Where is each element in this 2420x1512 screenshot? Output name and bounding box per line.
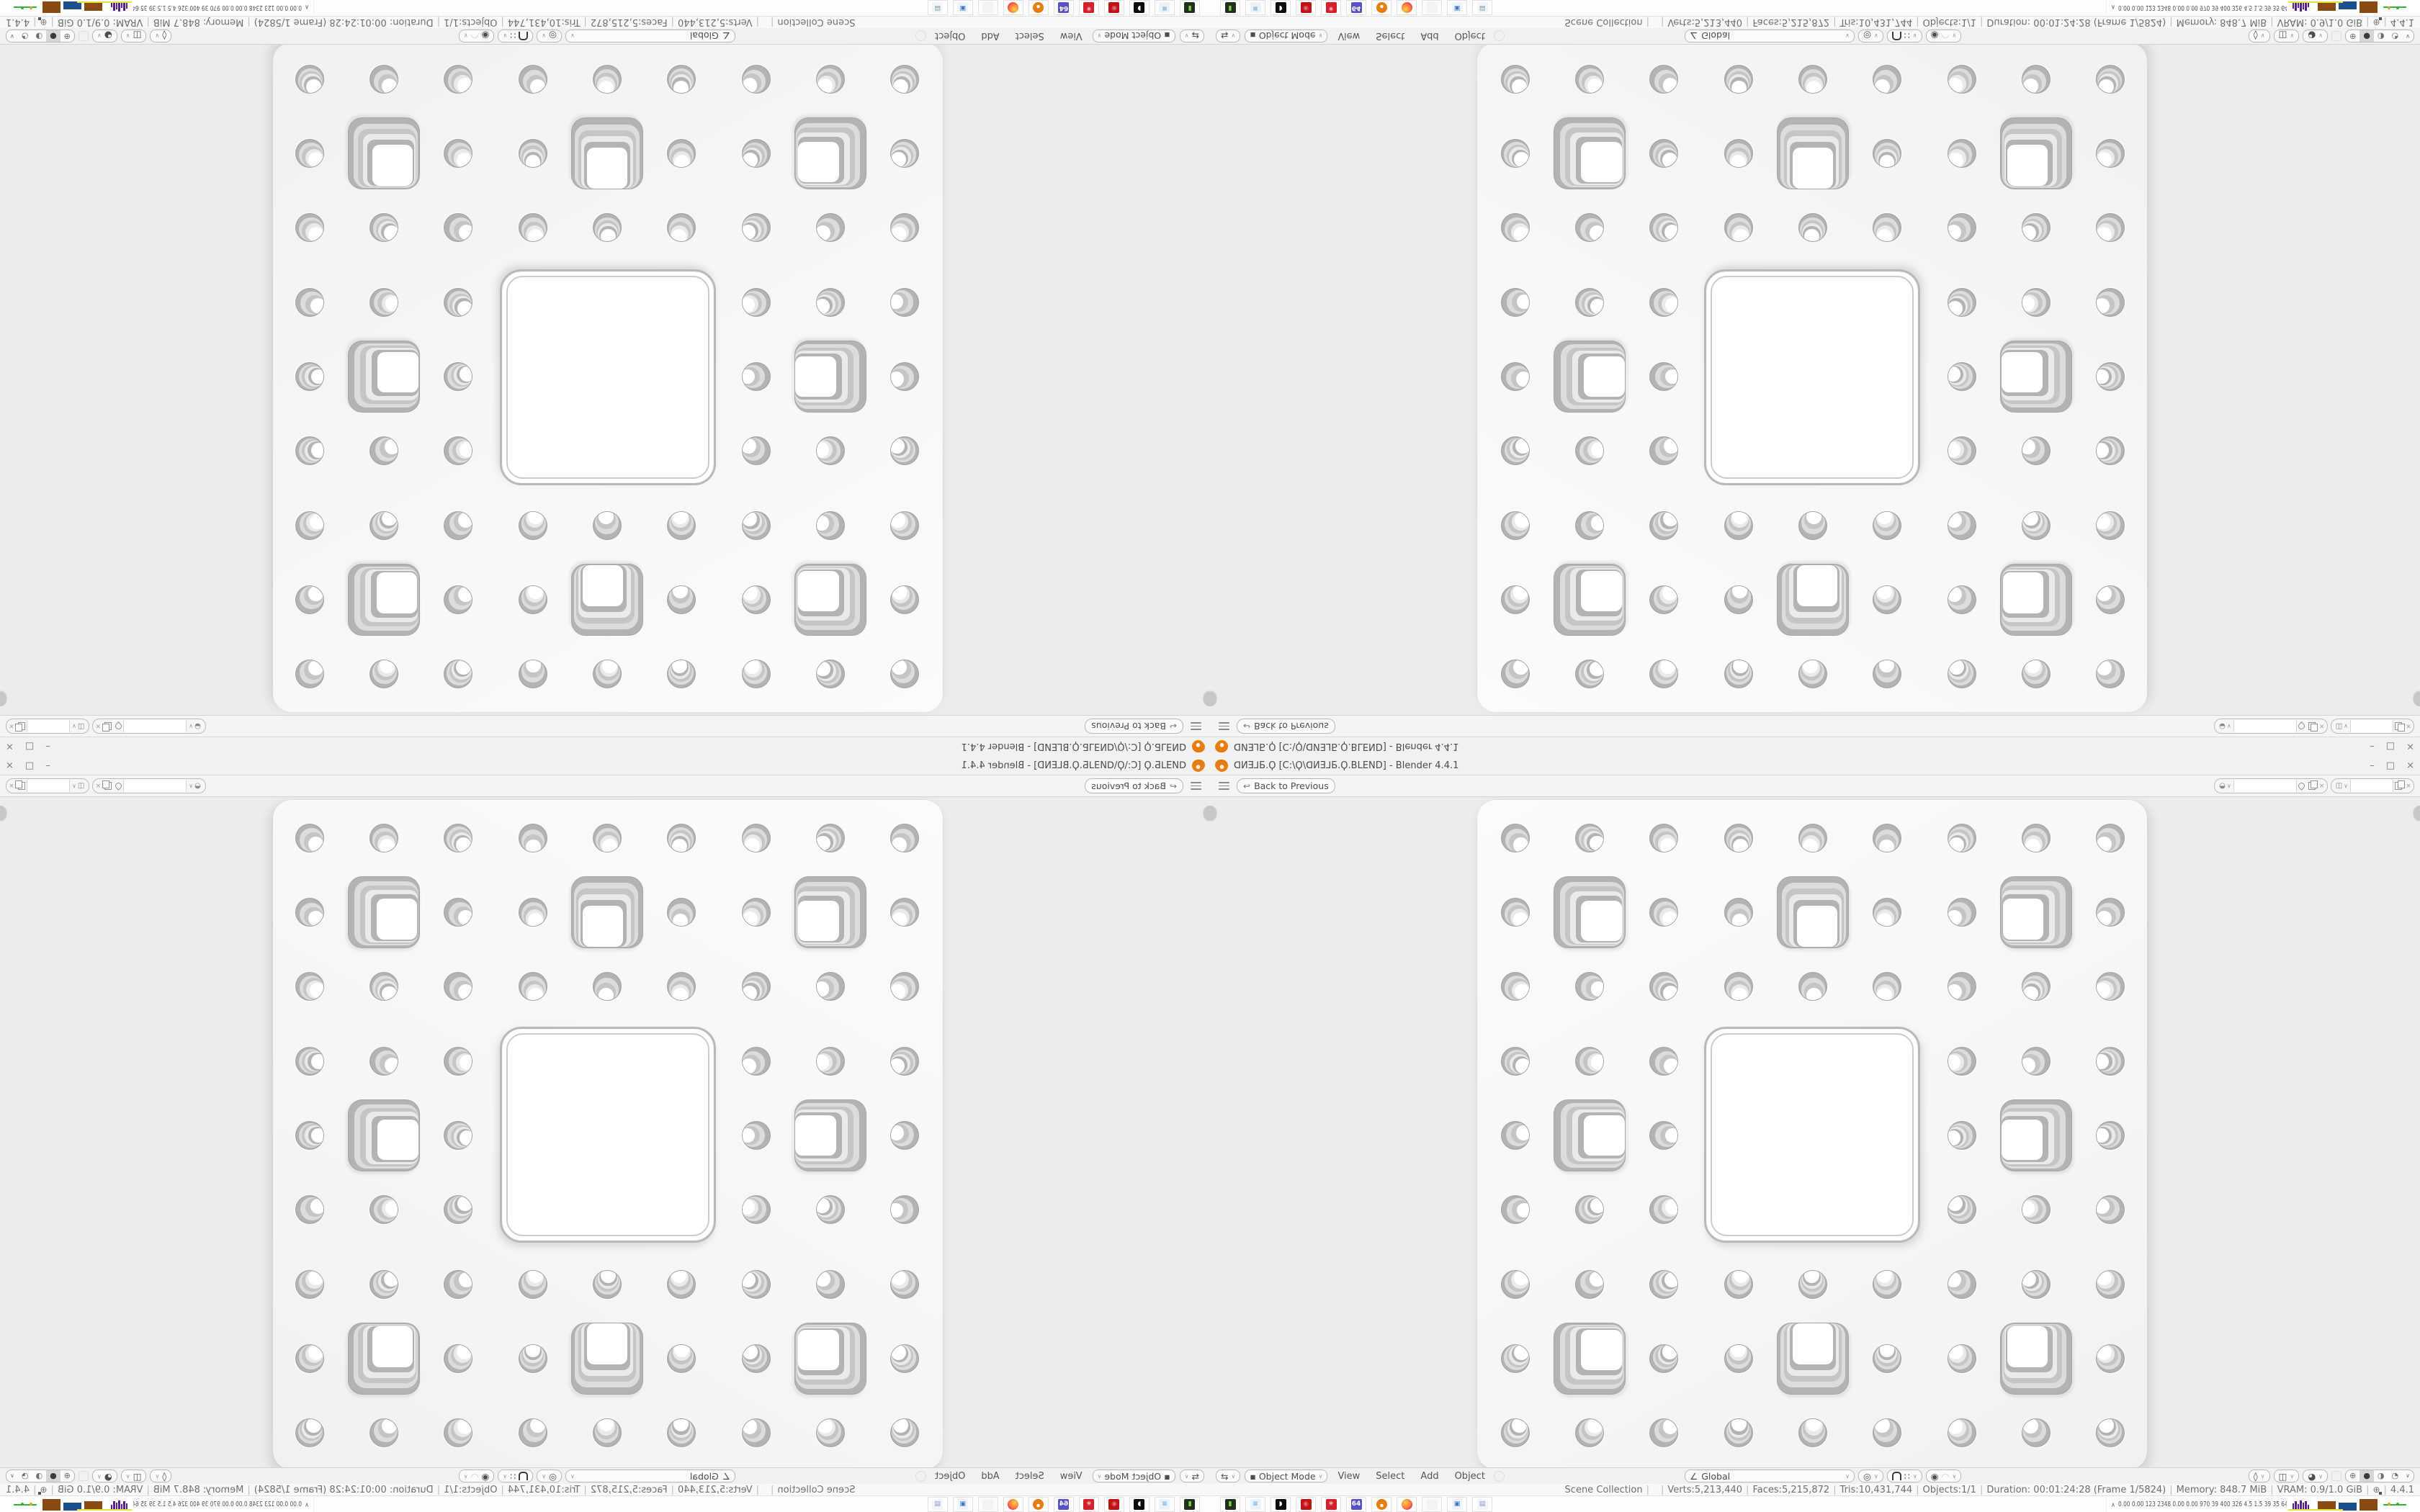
calculator-app[interactable]: ▤ xyxy=(1472,1497,1492,1512)
square-tunnel-hole xyxy=(794,117,866,189)
circle-hole xyxy=(1798,511,1827,540)
editor-type-button[interactable]: ⇆ ∨ xyxy=(1216,30,1240,42)
viewlayer-selector[interactable]: ◫ ∨ × xyxy=(6,778,89,793)
shading-mode-2-button[interactable]: ◑ xyxy=(32,1470,46,1482)
calculator-app[interactable]: ▤ xyxy=(928,1497,948,1512)
menu-add[interactable]: Add xyxy=(1420,31,1438,42)
viewport-header: ⇆ ∨ ▪ Object Mode ∨ ViewSelectAddObject … xyxy=(0,1467,1210,1485)
display-tool-app[interactable]: ▣ xyxy=(953,0,973,15)
circle-hole xyxy=(742,511,771,540)
topbar-right-cluster: ◒ ∨ × ◫ ∨ × xyxy=(2214,719,2414,734)
circle-hole xyxy=(295,1344,324,1373)
separator: | xyxy=(146,1485,149,1495)
stat-6: VRAM: 0.9/1.0 GiB xyxy=(2277,17,2363,28)
scene-selector[interactable]: ◒ ∨ × xyxy=(2214,778,2328,793)
blender-logo-icon xyxy=(1216,760,1228,772)
close-button[interactable]: × xyxy=(6,742,14,752)
square-tunnel-hole xyxy=(348,1323,419,1394)
circle-hole xyxy=(1948,362,1976,391)
xray-toggle-disabled-icon xyxy=(2331,31,2341,41)
red-dial-app[interactable]: ◉ xyxy=(1296,0,1316,15)
magnet-icon xyxy=(519,32,528,40)
blender-app[interactable] xyxy=(1371,1497,1391,1512)
close-button[interactable]: × xyxy=(2406,761,2414,770)
circle-hole xyxy=(1873,585,1901,614)
toolbar-collapsed-tab[interactable] xyxy=(1204,806,1210,820)
shading-mode-1-button[interactable]: ● xyxy=(2359,30,2374,42)
stat-1: Faces:5,215,872 xyxy=(1752,17,1829,28)
show-overlays-button[interactable]: ◫ ∨ xyxy=(121,1470,147,1482)
chevron-down-icon: ∨ xyxy=(464,33,468,40)
back-to-previous-button[interactable]: ↩ Back to Previous xyxy=(1237,778,1335,793)
editor-type-button[interactable]: ⇆ ∨ xyxy=(1216,1470,1240,1482)
stat-4: Duration: 00:01:24:28 (Frame 1/5824) xyxy=(254,1485,434,1495)
scene-selector[interactable]: ◒ ∨ × xyxy=(92,778,206,793)
shading-mode-2-button[interactable]: ◑ xyxy=(2374,1470,2388,1482)
hardware-monitor-app-icon: ▮ xyxy=(1225,2,1236,13)
sidebar-collapsed-tab[interactable] xyxy=(2414,692,2420,706)
close-button[interactable]: × xyxy=(6,761,14,770)
menu-add[interactable]: Add xyxy=(981,1471,999,1482)
viewport-3d[interactable] xyxy=(1210,797,2420,1467)
xray-dropdown-button[interactable]: ◕ ∨ xyxy=(92,1470,117,1482)
circle-hole xyxy=(1501,1270,1530,1299)
back-to-previous-button[interactable]: ↩ Back to Previous xyxy=(1085,778,1183,793)
circle-hole xyxy=(444,362,472,391)
separator: | xyxy=(1661,17,1664,28)
viewlayer-name-field[interactable] xyxy=(27,780,70,792)
separator: | xyxy=(1833,17,1836,28)
snap-button[interactable]: ∷ ∨ xyxy=(1887,1470,1922,1482)
shading-mode-0-button[interactable]: ⊕ xyxy=(60,30,74,42)
circle-hole xyxy=(1948,972,1976,1001)
pivot-point-button[interactable]: ◎ ∨ xyxy=(1858,1470,1883,1482)
menu-hamburger-icon[interactable] xyxy=(1191,782,1201,790)
window-controls: – □ × xyxy=(2370,742,2414,752)
shading-mode-1-button[interactable]: ● xyxy=(46,30,60,42)
circle-hole xyxy=(1724,65,1753,94)
firefox-app[interactable] xyxy=(1003,0,1023,15)
disabled-tool-icon xyxy=(1494,31,1505,42)
red-gear-app[interactable]: ✳ xyxy=(1079,1497,1099,1512)
display-tool-app[interactable]: ▣ xyxy=(1447,1497,1467,1512)
big-square-hole xyxy=(500,1027,716,1243)
new-viewlayer-copy-icon[interactable] xyxy=(2393,782,2403,790)
shading-mode-segment[interactable]: ⊕●◑◔∨ xyxy=(2345,30,2414,42)
separator: | xyxy=(2270,17,2273,28)
ghost-app[interactable] xyxy=(978,0,998,15)
square-tunnel-hole xyxy=(571,1323,642,1394)
notepad-app-icon: ≡ xyxy=(1160,1499,1170,1510)
hardware-monitor-app[interactable]: ▮ xyxy=(1220,1497,1240,1512)
viewlayer-icon: ◫ xyxy=(76,722,89,730)
menu-select[interactable]: Select xyxy=(1016,31,1044,42)
circle-hole xyxy=(742,898,771,927)
separator: | xyxy=(2366,1485,2369,1495)
blender-app[interactable] xyxy=(1371,0,1391,15)
sidebar-collapsed-tab[interactable] xyxy=(2414,806,2420,820)
viewport-3d[interactable] xyxy=(0,797,1210,1467)
circle-hole xyxy=(742,288,771,317)
proportional-edit-button[interactable]: ◉ ◠ ∨ xyxy=(459,1470,495,1482)
pin-icon[interactable] xyxy=(2297,783,2307,789)
pivot-point-button[interactable]: ◎ ∨ xyxy=(537,1470,562,1482)
viewport-3d[interactable] xyxy=(0,45,1210,715)
chevron-down-icon: ∨ xyxy=(155,33,159,40)
show-overlays-button[interactable]: ◫ ∨ xyxy=(121,30,147,42)
circle-hole xyxy=(519,65,547,94)
viewlayer-icon: ◫ xyxy=(2331,722,2344,730)
network-status-icon[interactable]: ⊕ xyxy=(40,1485,47,1495)
chevron-down-icon[interactable]: ∨ xyxy=(2402,30,2414,42)
proportional-dot-icon: ◉ xyxy=(1931,1471,1939,1482)
transform-orientation-dropdown[interactable]: ∠ Global ∨ xyxy=(565,1470,735,1482)
xray-sphere-icon: ◕ xyxy=(104,1471,112,1482)
snap-button[interactable]: ∷ ∨ xyxy=(498,1470,533,1482)
black-image-app[interactable]: ◗ xyxy=(1129,0,1149,15)
circle-hole xyxy=(667,139,696,168)
menu-select[interactable]: Select xyxy=(1016,1471,1044,1482)
scene-name-field[interactable] xyxy=(2233,720,2297,732)
new-scene-copy-icon[interactable] xyxy=(2307,722,2317,730)
chevron-down-icon: ∨ xyxy=(1874,33,1878,40)
circle-hole xyxy=(444,139,472,168)
xray-dropdown-button[interactable]: ◕ ∨ xyxy=(2303,1470,2328,1482)
header-right-cluster: ◊ ∨ ◫ ∨ ◕ ∨ ⊕●◑◔∨ xyxy=(6,1470,171,1482)
show-gizmo-button[interactable]: ◊ ∨ xyxy=(2249,30,2270,42)
floppy-64-app[interactable]: 64 xyxy=(1054,1497,1074,1512)
toolbar-collapsed-tab[interactable] xyxy=(1204,692,1210,706)
display-tool-app[interactable]: ▣ xyxy=(953,1497,973,1512)
chevron-down-icon[interactable]: ∨ xyxy=(6,30,18,42)
restore-button[interactable]: □ xyxy=(2386,742,2395,752)
floppy-64-app-icon: 64 xyxy=(1351,1499,1362,1510)
transform-orientation-dropdown[interactable]: ∠ Global ∨ xyxy=(565,30,735,42)
mode-label: Object Mode xyxy=(1259,31,1316,42)
viewport-3d[interactable] xyxy=(1210,45,2420,715)
taskbar-apps: ▮≡◗◉✳64▣▤ xyxy=(928,0,1200,15)
mode-dropdown[interactable]: ▪ Object Mode ∨ xyxy=(1093,30,1175,42)
system-monitor-widget[interactable]: ∧∧ 0.00 0.00 123 2348 0.00 0.00 970 39 4… xyxy=(2106,1497,2420,1512)
circle-hole xyxy=(593,972,622,1001)
close-button[interactable]: × xyxy=(2406,742,2414,752)
taskbar-apps: ▮≡◗◉✳64▣▤ xyxy=(1220,1497,1492,1512)
pin-icon[interactable] xyxy=(2297,723,2307,729)
scene-name-field[interactable] xyxy=(2233,780,2297,792)
stat-2: Tris:10,431,744 xyxy=(1840,1485,1913,1495)
system-monitor-widget[interactable]: ∧∧ 0.00 0.00 123 2348 0.00 0.00 970 39 4… xyxy=(2106,0,2420,15)
xray-dropdown-button[interactable]: ◕ ∨ xyxy=(92,30,117,42)
os-taskbar: ▮≡◗◉✳64▣▤ ∧∧ 0.00 0.00 123 2348 0.00 0.0… xyxy=(1210,0,2420,17)
chevron-down-icon[interactable]: ∨ xyxy=(2402,1470,2414,1482)
shading-mode-0-button[interactable]: ⊕ xyxy=(2346,1470,2359,1482)
sidebar-collapsed-tab[interactable] xyxy=(0,692,6,706)
network-status-icon[interactable]: ⊕ xyxy=(2372,1485,2380,1495)
scene-selector[interactable]: ◒ ∨ × xyxy=(92,719,206,734)
status-bar: Scene Collection||Verts:5,213,440|Faces:… xyxy=(1210,1484,2420,1495)
monitor-bar-blocks xyxy=(42,2,102,14)
firefox-app[interactable] xyxy=(1397,0,1417,15)
editor-type-button[interactable]: ⇆ ∨ xyxy=(1180,1470,1204,1482)
red-dial-app[interactable]: ◉ xyxy=(1104,1497,1124,1512)
new-viewlayer-copy-icon[interactable] xyxy=(17,782,27,790)
show-overlays-button[interactable]: ◫ ∨ xyxy=(2274,1470,2300,1482)
circle-hole xyxy=(1649,1270,1678,1299)
menu-view[interactable]: View xyxy=(1060,1471,1083,1482)
shading-mode-segment[interactable]: ⊕●◑◔∨ xyxy=(6,30,75,42)
pin-icon[interactable] xyxy=(113,783,123,789)
separator: | xyxy=(756,17,759,28)
chevron-down-icon[interactable]: ∨ xyxy=(6,1470,18,1482)
big-square-hole xyxy=(1704,269,1920,485)
gizmo-icon: ◊ xyxy=(2254,1471,2258,1482)
proportional-edit-button[interactable]: ◉ ◠ ∨ xyxy=(459,30,495,42)
circle-hole xyxy=(742,362,771,391)
viewlayer-selector[interactable]: ◫ ∨ × xyxy=(2331,778,2414,793)
shading-mode-2-button[interactable]: ◑ xyxy=(32,30,46,42)
restore-button[interactable]: □ xyxy=(25,761,34,770)
circle-hole xyxy=(816,1195,845,1224)
menu-view[interactable]: View xyxy=(1337,1471,1360,1482)
shading-mode-3-button[interactable]: ◔ xyxy=(18,30,32,42)
menu-hamburger-icon[interactable] xyxy=(1219,782,1229,790)
chevron-down-icon: ∨ xyxy=(2290,1473,2294,1480)
red-gear-app[interactable]: ✳ xyxy=(1079,0,1099,15)
circle-hole xyxy=(593,660,622,688)
firefox-app[interactable] xyxy=(1397,1497,1417,1512)
circle-hole xyxy=(519,972,547,1001)
snap-button[interactable]: ∷ ∨ xyxy=(498,30,533,42)
red-gear-app[interactable]: ✳ xyxy=(1321,0,1341,15)
red-dial-app-icon: ◉ xyxy=(1301,2,1312,13)
pivot-point-button[interactable]: ◎ ∨ xyxy=(1858,30,1883,42)
scene-name-field[interactable] xyxy=(123,720,187,732)
viewlayer-name-field[interactable] xyxy=(2350,720,2393,732)
shading-mode-segment[interactable]: ⊕●◑◔∨ xyxy=(2345,1470,2414,1482)
blender-version-label: 4.4.1 xyxy=(6,17,30,28)
circle-hole xyxy=(890,1121,919,1150)
circle-hole xyxy=(1873,1270,1901,1299)
circle-hole xyxy=(1873,213,1901,242)
shading-mode-3-button[interactable]: ◔ xyxy=(2388,30,2403,42)
menu-add[interactable]: Add xyxy=(1420,1471,1438,1482)
notepad-app[interactable]: ≡ xyxy=(1155,0,1175,15)
circle-hole xyxy=(519,585,547,614)
circle-hole xyxy=(890,898,919,927)
circle-hole xyxy=(890,585,919,614)
viewlayer-selector[interactable]: ◫ ∨ × xyxy=(2331,719,2414,734)
show-gizmo-button[interactable]: ◊ ∨ xyxy=(150,1470,171,1482)
square-tunnel-hole xyxy=(794,1099,866,1171)
new-viewlayer-copy-icon[interactable] xyxy=(17,722,27,730)
display-tool-app[interactable]: ▣ xyxy=(1447,0,1467,15)
pivot-point-button[interactable]: ◎ ∨ xyxy=(537,30,562,42)
chevron-down-icon: ∨ xyxy=(2290,33,2294,40)
ghost-app[interactable] xyxy=(1422,0,1442,15)
red-dial-app[interactable]: ◉ xyxy=(1104,0,1124,15)
notepad-app[interactable]: ≡ xyxy=(1155,1497,1175,1512)
scene-delete-icon[interactable]: × xyxy=(2317,723,2327,730)
shading-mode-3-button[interactable]: ◔ xyxy=(18,1470,32,1482)
show-gizmo-button[interactable]: ◊ ∨ xyxy=(2249,1470,2270,1482)
firefox-app[interactable] xyxy=(1003,1497,1023,1512)
viewlayer-delete-icon[interactable]: × xyxy=(2403,723,2414,730)
editor-3d-viewport-icon: ⇆ xyxy=(1192,31,1199,42)
circle-hole xyxy=(369,511,398,540)
square-tunnel-hole xyxy=(571,876,642,948)
toolbar-collapsed-tab[interactable] xyxy=(1210,692,1216,706)
circle-hole xyxy=(2096,139,2125,168)
floppy-64-app[interactable]: 64 xyxy=(1346,0,1366,15)
xray-dropdown-button[interactable]: ◕ ∨ xyxy=(2303,30,2328,42)
circle-hole xyxy=(444,436,472,465)
chevron-down-icon: ∨ xyxy=(1319,33,1323,40)
menu-select[interactable]: Select xyxy=(1376,1471,1404,1482)
calculator-app-icon: ▤ xyxy=(1477,1499,1488,1510)
minimize-button[interactable]: – xyxy=(2370,761,2375,770)
shading-mode-0-button[interactable]: ⊕ xyxy=(2346,30,2359,42)
snap-button[interactable]: ∷ ∨ xyxy=(1887,30,1922,42)
menu-view[interactable]: View xyxy=(1337,31,1360,42)
minimize-button[interactable]: – xyxy=(2370,742,2375,752)
hardware-monitor-app[interactable]: ▮ xyxy=(1220,0,1240,15)
proportional-edit-button[interactable]: ◉ ◠ ∨ xyxy=(1926,30,1962,42)
circle-hole xyxy=(369,436,398,465)
menu-select[interactable]: Select xyxy=(1376,31,1404,42)
shading-mode-1-button[interactable]: ● xyxy=(2359,1470,2374,1482)
menu-object[interactable]: Object xyxy=(935,1471,965,1482)
transform-orientation-dropdown[interactable]: ∠ Global ∨ xyxy=(1685,1470,1855,1482)
scene-selector[interactable]: ◒ ∨ × xyxy=(2214,719,2328,734)
back-to-previous-button[interactable]: ↩ Back to Previous xyxy=(1085,719,1183,734)
new-scene-copy-icon[interactable] xyxy=(2307,782,2317,790)
proportional-edit-button[interactable]: ◉ ◠ ∨ xyxy=(1926,1470,1962,1482)
transform-orientation-dropdown[interactable]: ∠ Global ∨ xyxy=(1685,30,1855,42)
viewlayer-name-field[interactable] xyxy=(2350,780,2393,792)
circle-hole xyxy=(519,1344,547,1373)
new-viewlayer-copy-icon[interactable] xyxy=(2393,722,2403,730)
menu-view[interactable]: View xyxy=(1060,31,1083,42)
red-dial-app-icon: ◉ xyxy=(1109,1499,1120,1510)
monitor-values: 0.00 0.00 123 2348 0.00 0.00 970 39 400 … xyxy=(133,1500,302,1508)
notepad-app[interactable]: ≡ xyxy=(1245,0,1265,15)
circle-hole xyxy=(1649,65,1678,94)
viewlayer-selector[interactable]: ◫ ∨ × xyxy=(6,719,89,734)
circle-hole xyxy=(1501,1121,1530,1150)
scene-name-field[interactable] xyxy=(123,780,187,792)
menu-object[interactable]: Object xyxy=(1455,31,1485,42)
black-image-app[interactable]: ◗ xyxy=(1270,1497,1291,1512)
minimize-button[interactable]: – xyxy=(45,742,50,752)
blender-app[interactable] xyxy=(1028,1497,1049,1512)
shading-mode-0-button[interactable]: ⊕ xyxy=(60,1470,74,1482)
stat-6: VRAM: 0.9/1.0 GiB xyxy=(58,17,143,28)
shading-mode-2-button[interactable]: ◑ xyxy=(2374,30,2388,42)
ghost-app[interactable] xyxy=(1422,1497,1442,1512)
black-image-app[interactable]: ◗ xyxy=(1270,0,1291,15)
menu-add[interactable]: Add xyxy=(981,31,999,42)
circle-hole xyxy=(1649,436,1678,465)
menu-object[interactable]: Object xyxy=(1455,1471,1485,1482)
circle-hole xyxy=(369,660,398,688)
monitor-line-graph xyxy=(14,1504,37,1506)
chevron-down-icon: ∨ xyxy=(1913,1473,1917,1480)
system-monitor-widget[interactable]: ∧∧ 0.00 0.00 123 2348 0.00 0.00 970 39 4… xyxy=(0,0,314,15)
chevron-down-icon: ∨ xyxy=(542,33,546,40)
circle-hole xyxy=(1873,898,1901,927)
menu-object[interactable]: Object xyxy=(935,31,965,42)
show-overlays-button[interactable]: ◫ ∨ xyxy=(2274,30,2300,42)
notepad-app[interactable]: ≡ xyxy=(1245,1497,1265,1512)
floppy-64-app[interactable]: 64 xyxy=(1054,0,1074,15)
menger-sponge-render xyxy=(273,800,943,1467)
shading-mode-3-button[interactable]: ◔ xyxy=(2388,1470,2403,1482)
viewlayer-delete-icon[interactable]: × xyxy=(2403,783,2414,790)
circle-hole xyxy=(295,1195,324,1224)
circle-hole xyxy=(742,139,771,168)
circle-hole xyxy=(369,972,398,1001)
mode-dropdown[interactable]: ▪ Object Mode ∨ xyxy=(1245,30,1327,42)
back-to-previous-button[interactable]: ↩ Back to Previous xyxy=(1237,719,1335,734)
circle-hole xyxy=(2096,1195,2125,1224)
new-scene-copy-icon[interactable] xyxy=(103,722,113,730)
editor-type-button[interactable]: ⇆ ∨ xyxy=(1180,30,1204,42)
ghost-app[interactable] xyxy=(978,1497,998,1512)
sidebar-collapsed-tab[interactable] xyxy=(0,806,6,820)
restore-button[interactable]: □ xyxy=(25,742,34,752)
square-tunnel-hole xyxy=(2000,564,2071,635)
menu-hamburger-icon[interactable] xyxy=(1191,722,1201,730)
blender-app[interactable] xyxy=(1028,0,1049,15)
toolbar-collapsed-tab[interactable] xyxy=(1210,806,1216,820)
circle-hole xyxy=(519,139,547,168)
network-status-icon[interactable]: ⊕ xyxy=(40,17,47,27)
red-dial-app[interactable]: ◉ xyxy=(1296,1497,1316,1512)
shading-mode-1-button[interactable]: ● xyxy=(46,1470,60,1482)
topbar: ↩ Back to Previous ◒ ∨ × ◫ ∨ × xyxy=(0,775,1210,797)
pin-icon[interactable] xyxy=(113,723,123,729)
chevron-down-icon: ∨ xyxy=(97,33,102,40)
show-gizmo-button[interactable]: ◊ ∨ xyxy=(150,30,171,42)
mode-dropdown[interactable]: ▪ Object Mode ∨ xyxy=(1093,1470,1175,1482)
minimize-button[interactable]: – xyxy=(45,761,50,770)
new-scene-copy-icon[interactable] xyxy=(103,782,113,790)
circle-hole xyxy=(1873,139,1901,168)
stat-3: Objects:1/1 xyxy=(1923,1485,1976,1495)
floppy-64-app[interactable]: 64 xyxy=(1346,1497,1366,1512)
restore-button[interactable]: □ xyxy=(2386,761,2395,770)
black-image-app[interactable]: ◗ xyxy=(1129,1497,1149,1512)
ghost-app-icon xyxy=(983,2,994,13)
square-tunnel-hole xyxy=(1554,564,1625,635)
titlebar: ᗡИƎ⅃Ƃ.Ϙ [C:\Ϙ\ᗡИƎ⅃Ƃ.Ϙ.BLEND] - Blender 4… xyxy=(0,756,1210,775)
system-monitor-widget[interactable]: ∧∧ 0.00 0.00 123 2348 0.00 0.00 970 39 4… xyxy=(0,1497,314,1512)
mode-dropdown[interactable]: ▪ Object Mode ∨ xyxy=(1245,1470,1327,1482)
scene-delete-icon[interactable]: × xyxy=(2317,783,2327,790)
hardware-monitor-app[interactable]: ▮ xyxy=(1180,1497,1200,1512)
viewlayer-name-field[interactable] xyxy=(27,720,70,732)
menu-hamburger-icon[interactable] xyxy=(1219,722,1229,730)
calculator-app[interactable]: ▤ xyxy=(928,0,948,15)
red-gear-app-icon: ✳ xyxy=(1326,2,1337,13)
shading-mode-segment[interactable]: ⊕●◑◔∨ xyxy=(6,1470,75,1482)
chevron-down-icon: ∨ xyxy=(2318,1473,2323,1480)
red-gear-app[interactable]: ✳ xyxy=(1321,1497,1341,1512)
circle-hole xyxy=(369,213,398,242)
network-status-icon[interactable]: ⊕ xyxy=(2372,17,2380,27)
hardware-monitor-app[interactable]: ▮ xyxy=(1180,0,1200,15)
calculator-app[interactable]: ▤ xyxy=(1472,0,1492,15)
